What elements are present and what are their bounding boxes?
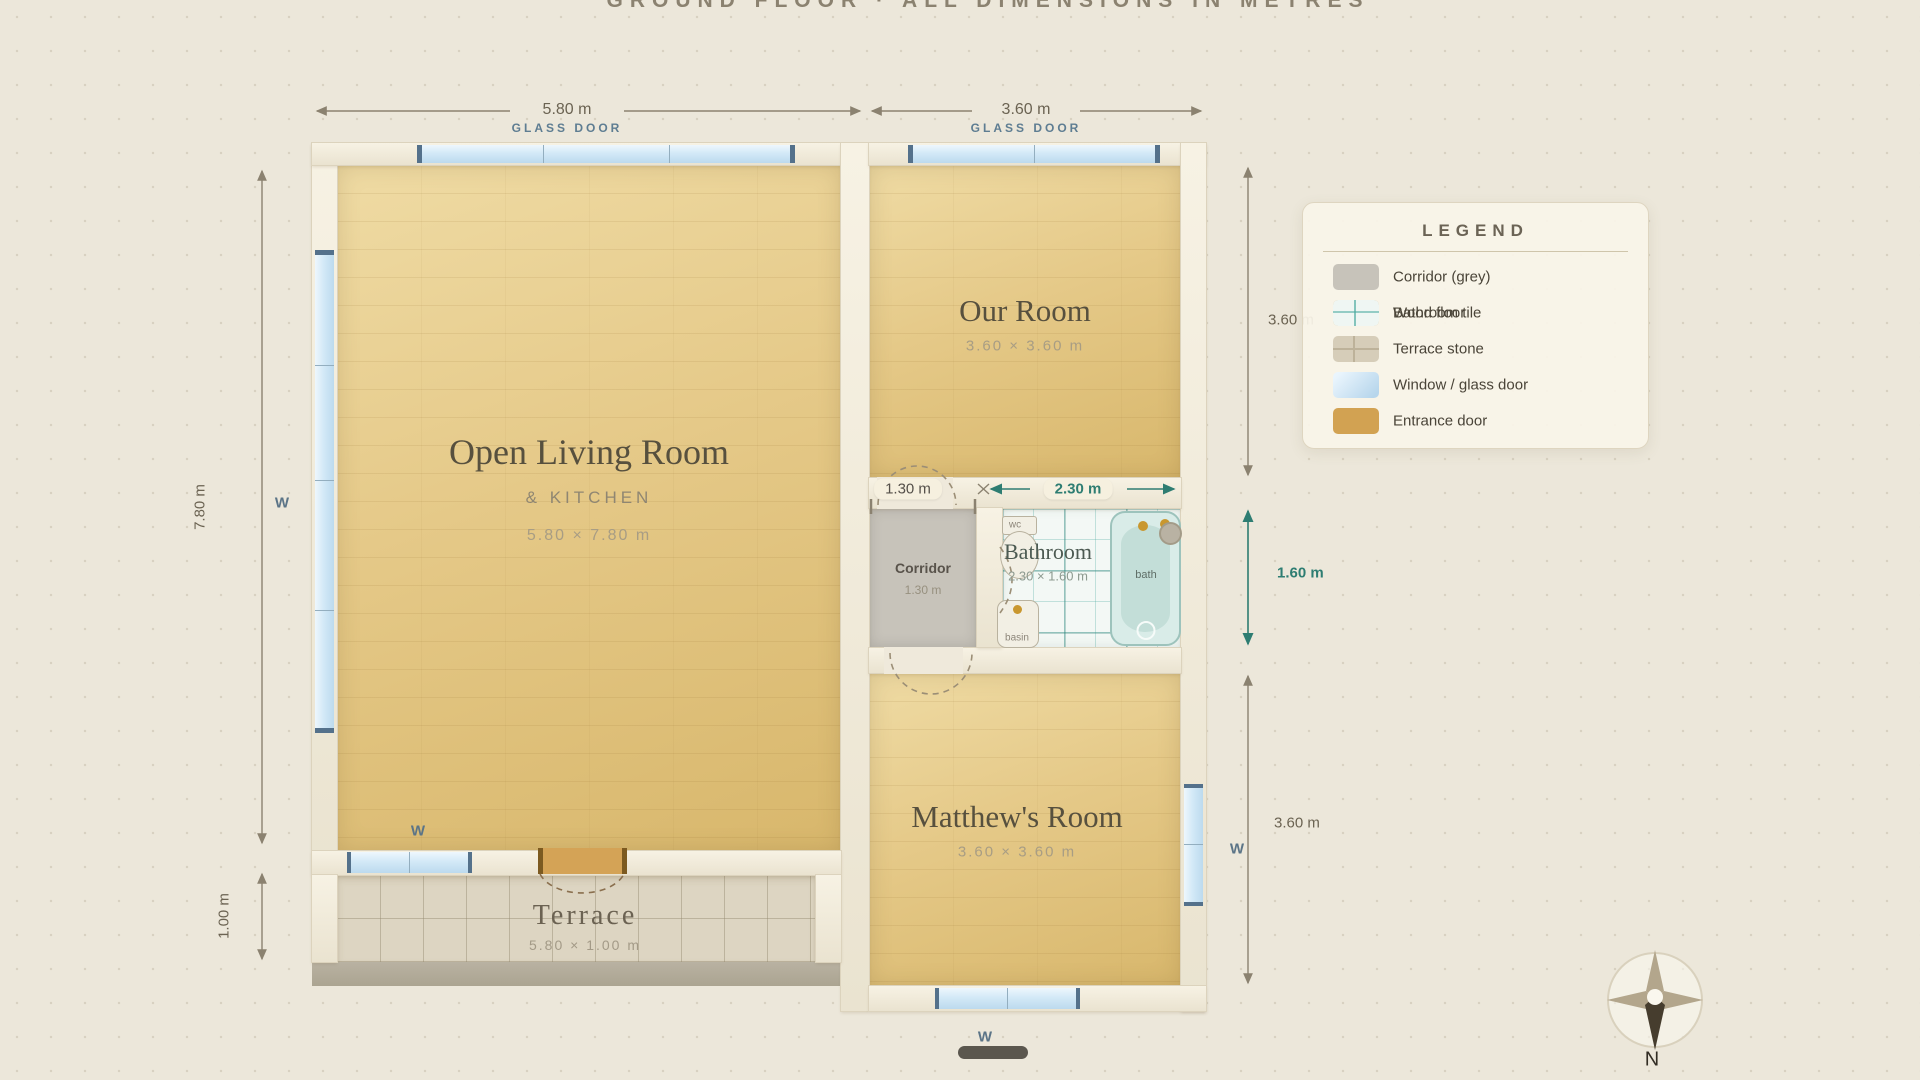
window-frame bbox=[935, 988, 939, 1009]
terrace-stub-left bbox=[312, 875, 337, 962]
window-frame bbox=[468, 852, 472, 873]
pane-divider bbox=[315, 480, 334, 481]
horizontal-scrollbar-thumb[interactable] bbox=[958, 1046, 1028, 1059]
wall-middle bbox=[841, 143, 869, 1011]
living-room-name: Open Living Room bbox=[449, 431, 729, 473]
entrance-door-swatch bbox=[1333, 408, 1379, 434]
dim-top-living-glassdoor: GLASS DOOR bbox=[512, 121, 623, 135]
bathroom-dimensions: 2.30 × 1.60 m bbox=[1008, 569, 1088, 584]
legend-label: Terrace stone bbox=[1393, 341, 1484, 358]
pane-divider bbox=[1034, 145, 1035, 163]
wc-label: wc bbox=[1009, 520, 1021, 531]
compass-rose bbox=[1607, 950, 1703, 1050]
pane-divider bbox=[315, 610, 334, 611]
window-label-south-matthew: W bbox=[978, 1029, 992, 1046]
legend-label: Window / glass door bbox=[1393, 377, 1528, 394]
pane-divider bbox=[669, 145, 670, 163]
legend-panel: LEGEND Corridor (grey) Wood floor Bathro… bbox=[1302, 202, 1649, 449]
window-label-south-living: W bbox=[411, 823, 425, 840]
window-frame bbox=[315, 250, 334, 255]
bath-drain bbox=[1136, 621, 1155, 640]
legend-item-wood-and-tile: Wood floor Bathroom tile bbox=[1333, 299, 1623, 327]
legend-label: Corridor (grey) bbox=[1393, 269, 1491, 286]
window-frame bbox=[908, 145, 913, 163]
window-frame bbox=[1184, 784, 1203, 788]
door-opening-matthew-room bbox=[885, 648, 962, 673]
window-living-south bbox=[347, 852, 472, 873]
window-label-east-matthew: W bbox=[1230, 841, 1244, 858]
living-room-floor bbox=[337, 165, 841, 851]
corridor-name: Corridor bbox=[895, 560, 951, 576]
corridor-swatch bbox=[1333, 264, 1379, 290]
bathroom-name: Bathroom bbox=[1004, 539, 1092, 565]
our-room-dimensions: 3.60 × 3.60 m bbox=[966, 338, 1084, 355]
legend-label: Bathroom tile bbox=[1393, 305, 1481, 322]
terrace-stub-right bbox=[816, 875, 841, 962]
pane-divider bbox=[315, 365, 334, 366]
legend-title: LEGEND bbox=[1303, 221, 1648, 241]
pane-divider bbox=[543, 145, 544, 163]
living-room-subtitle: & KITCHEN bbox=[526, 488, 653, 508]
dim-top-ourroom-glassdoor: GLASS DOOR bbox=[971, 121, 1082, 135]
shower-head bbox=[1159, 522, 1182, 545]
terrace-dimensions: 5.80 × 1.00 m bbox=[529, 937, 641, 953]
dim-top-living: 5.80 m bbox=[543, 101, 592, 119]
legend-item-terrace: Terrace stone bbox=[1333, 335, 1623, 363]
window-frame bbox=[790, 145, 795, 163]
corridor-floor bbox=[869, 508, 977, 647]
glass-door-ourroom-north bbox=[908, 145, 1160, 163]
our-room-name: Our Room bbox=[959, 293, 1091, 329]
dim-right-bathroom: 1.60 m bbox=[1277, 565, 1324, 582]
basin-tap bbox=[1013, 605, 1022, 614]
matthew-room-name: Matthew's Room bbox=[911, 799, 1122, 835]
dim-left-terrace: 1.00 m bbox=[216, 893, 233, 939]
terrace-stone-swatch bbox=[1333, 336, 1379, 362]
window-frame bbox=[347, 852, 351, 873]
basin-label: basin bbox=[1005, 633, 1029, 644]
window-frame bbox=[417, 145, 422, 163]
legend-item-entrance: Entrance door bbox=[1333, 407, 1623, 435]
legend-divider bbox=[1323, 251, 1628, 252]
terrace-name: Terrace bbox=[533, 900, 638, 932]
pane-divider bbox=[1184, 844, 1203, 845]
pane-divider bbox=[409, 852, 410, 873]
window-frame bbox=[1155, 145, 1160, 163]
window-glass-swatch bbox=[1333, 372, 1379, 398]
terrace-edge-step bbox=[312, 962, 841, 986]
door-jamb bbox=[622, 848, 627, 874]
legend-label: Entrance door bbox=[1393, 413, 1487, 430]
window-frame bbox=[315, 728, 334, 733]
dim-top-ourroom: 3.60 m bbox=[1002, 101, 1051, 119]
bath-tap bbox=[1138, 521, 1148, 531]
window-living-west bbox=[315, 250, 334, 733]
dim-corridor-width: 1.30 m bbox=[874, 479, 942, 500]
living-room-dimensions: 5.80 × 7.80 m bbox=[527, 527, 651, 545]
glass-door-living-north bbox=[417, 145, 795, 163]
legend-item-window: Window / glass door bbox=[1333, 371, 1623, 399]
dim-left-living: 7.80 m bbox=[192, 484, 209, 530]
dim-right-matthew: 3.60 m bbox=[1274, 815, 1320, 832]
bathroom-tile-swatch bbox=[1333, 300, 1379, 326]
window-label-west: W bbox=[275, 495, 289, 512]
matthew-room-dimensions: 3.60 × 3.60 m bbox=[958, 844, 1076, 861]
window-matthew-east bbox=[1184, 784, 1203, 906]
corridor-dimensions: 1.30 m bbox=[905, 583, 942, 597]
pane-divider bbox=[1007, 988, 1008, 1009]
legend-item-corridor: Corridor (grey) bbox=[1333, 263, 1623, 291]
window-frame bbox=[1076, 988, 1080, 1009]
page-title: GROUND FLOOR · ALL DIMENSIONS IN METRES bbox=[56, 0, 1920, 13]
window-frame bbox=[1184, 902, 1203, 906]
compass-north-label: N bbox=[1645, 1049, 1659, 1072]
dim-bathroom-width: 2.30 m bbox=[1044, 479, 1113, 500]
door-jamb bbox=[538, 848, 543, 874]
entrance-door bbox=[538, 848, 627, 874]
bath-label: bath bbox=[1135, 569, 1156, 581]
window-matthew-south bbox=[935, 988, 1080, 1009]
